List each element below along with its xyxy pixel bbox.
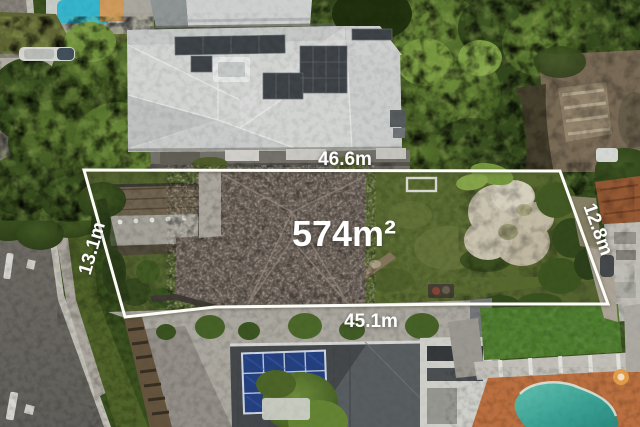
svg-text:45.1m: 45.1m xyxy=(344,311,398,332)
svg-text:574m²: 574m² xyxy=(292,213,396,254)
svg-text:46.6m: 46.6m xyxy=(318,149,372,170)
